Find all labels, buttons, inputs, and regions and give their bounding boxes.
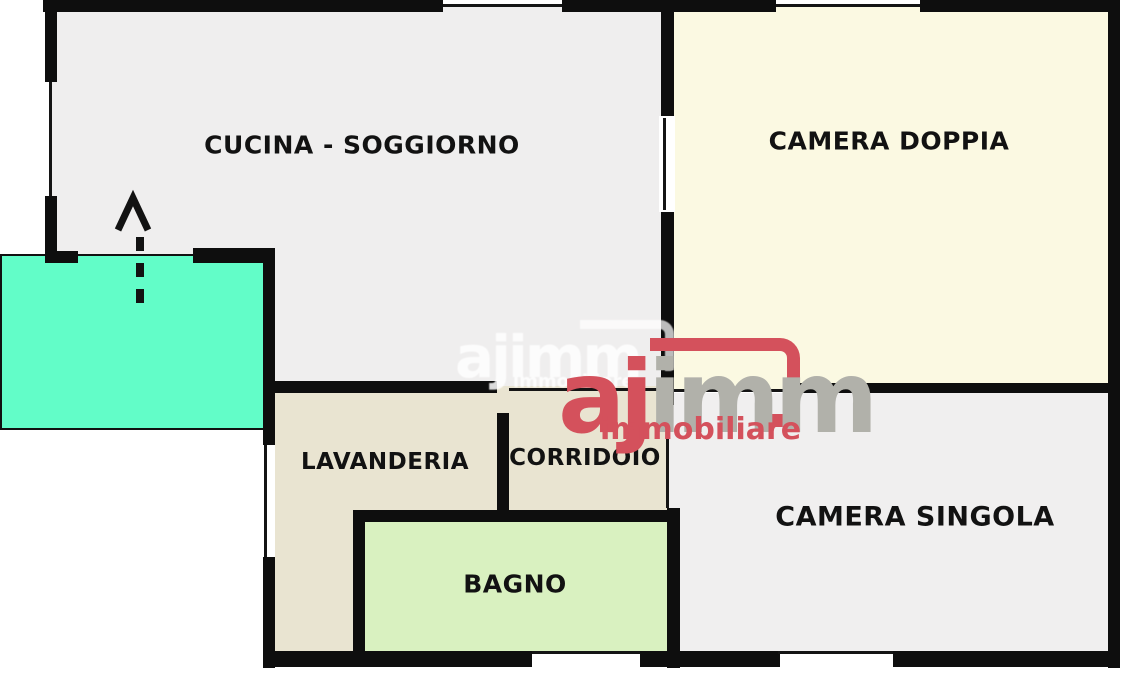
wall-bagno-left (353, 510, 365, 657)
wall-cucina-doppia-lower (661, 210, 674, 405)
doorway-line-corridoio-top (509, 388, 661, 391)
wall-left-mid (45, 196, 57, 256)
label-corridoio: CORRIDOIO (509, 445, 661, 471)
door-gap-cucina-doppia (659, 116, 675, 212)
wall-bottom-right (893, 651, 1120, 667)
wall-bagno-right (667, 508, 680, 668)
door-line-cucina-doppia (663, 118, 666, 210)
floor-plan: CUCINA - SOGGIORNO CAMERA DOPPIA LAVANDE… (0, 0, 1133, 700)
wall-doppia-singola (793, 383, 1120, 393)
door-line-corridoio-singola (666, 405, 669, 508)
wall-bottom-mid (640, 651, 780, 667)
wall-bagno-top (353, 510, 680, 522)
wall-balcony-top (193, 248, 273, 263)
wall-right-outer (1108, 0, 1120, 668)
wall-left-foot (45, 251, 78, 263)
label-bagno: BAGNO (463, 570, 567, 599)
opening-line-doppia-singola (674, 389, 793, 392)
wall-top-left (43, 0, 443, 12)
room-camera-doppia (667, 6, 1114, 392)
wall-lavanderia-top (263, 381, 497, 393)
window-line-lavanderia (264, 445, 267, 557)
wall-top-right (920, 0, 1120, 12)
wall-corridoio-left (497, 413, 509, 514)
window-gap-lavanderia (266, 445, 275, 557)
entrance-arrow-icon (105, 190, 165, 320)
label-camera-singola: CAMERA SINGOLA (775, 502, 1054, 533)
wall-cucina-doppia-upper (661, 6, 674, 118)
window-top-cucina (443, 4, 562, 7)
wall-bottom-left (263, 651, 532, 667)
window-line-singola-bottom (778, 651, 893, 654)
wall-left-upper (45, 0, 57, 82)
window-line-bagno-bottom (532, 651, 640, 654)
wall-balcony-right (263, 248, 275, 445)
label-camera-doppia: CAMERA DOPPIA (769, 127, 1010, 156)
window-top-doppia (776, 4, 920, 7)
label-lavanderia: LAVANDERIA (301, 449, 469, 475)
label-cucina-soggiorno: CUCINA - SOGGIORNO (204, 131, 520, 160)
window-left-cucina (49, 82, 52, 196)
